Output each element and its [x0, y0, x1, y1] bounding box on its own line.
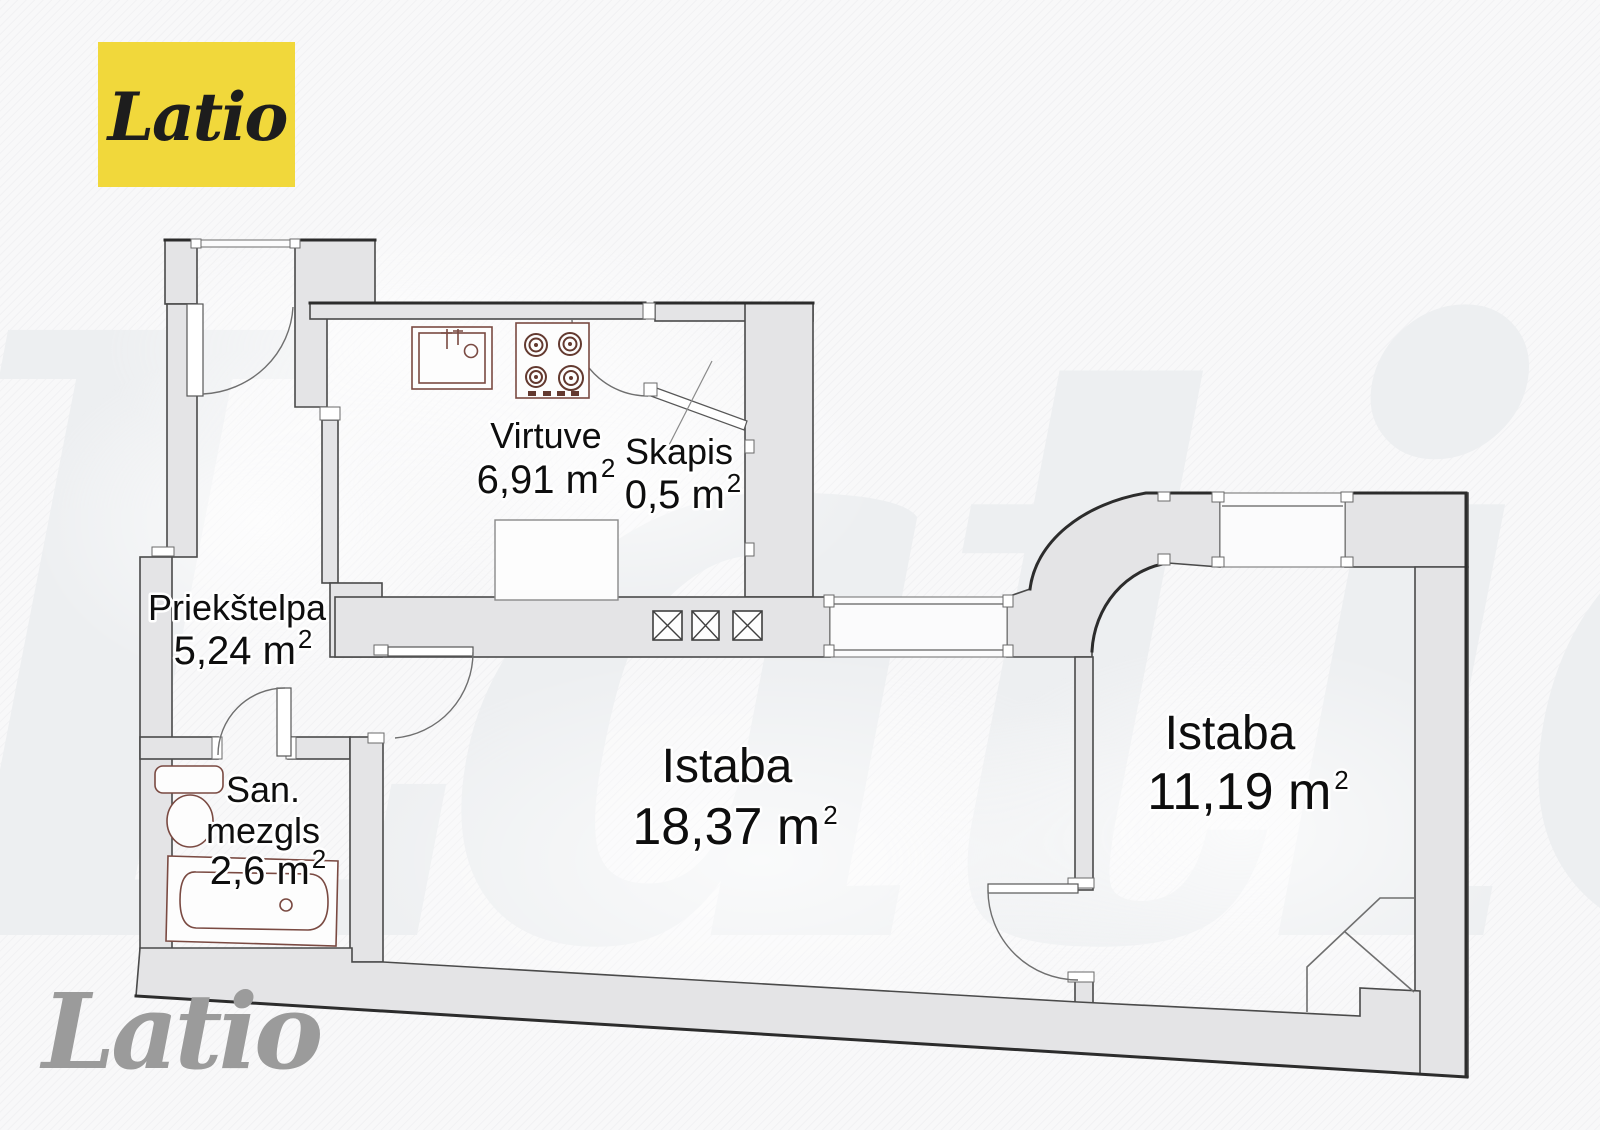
room-label-skapis: Skapis 0,5 m2 [625, 431, 742, 517]
svg-text:0,5 m2: 0,5 m2 [625, 468, 742, 517]
footer-watermark: Latio [39, 970, 320, 1093]
kitchen-counter [495, 520, 618, 600]
svg-text:Istaba: Istaba [1165, 707, 1296, 760]
svg-text:11,19 m2: 11,19 m2 [1147, 763, 1349, 821]
floor-plan-drawing: Latio [0, 0, 1600, 1130]
svg-text:Skapis: Skapis [625, 431, 733, 472]
svg-text:Priekštelpa: Priekštelpa [148, 587, 327, 628]
stove-icon [516, 323, 589, 398]
window-center-opening [830, 597, 1007, 657]
svg-text:18,37 m2: 18,37 m2 [632, 798, 837, 856]
svg-text:2,6 m2: 2,6 m2 [210, 844, 327, 893]
latio-logo: Latio [98, 42, 295, 187]
svg-text:San.: San. [226, 769, 300, 810]
svg-text:mezgls: mezgls [206, 810, 320, 851]
logo-text: Latio [106, 78, 287, 156]
sink-icon [412, 327, 492, 389]
floor-plan-page: Latio [0, 0, 1600, 1130]
vanity-shelf-icon [155, 766, 223, 793]
room-label-virtuve: Virtuve 6,91 m2 [477, 415, 616, 502]
svg-text:Istaba: Istaba [662, 740, 793, 793]
window-top-right [1220, 493, 1345, 567]
entrance-opening [197, 240, 295, 247]
vent-shaft-icons [653, 611, 762, 640]
svg-text:Virtuve: Virtuve [490, 415, 601, 456]
svg-text:6,91 m2: 6,91 m2 [477, 453, 616, 502]
svg-text:5,24 m2: 5,24 m2 [174, 624, 313, 673]
